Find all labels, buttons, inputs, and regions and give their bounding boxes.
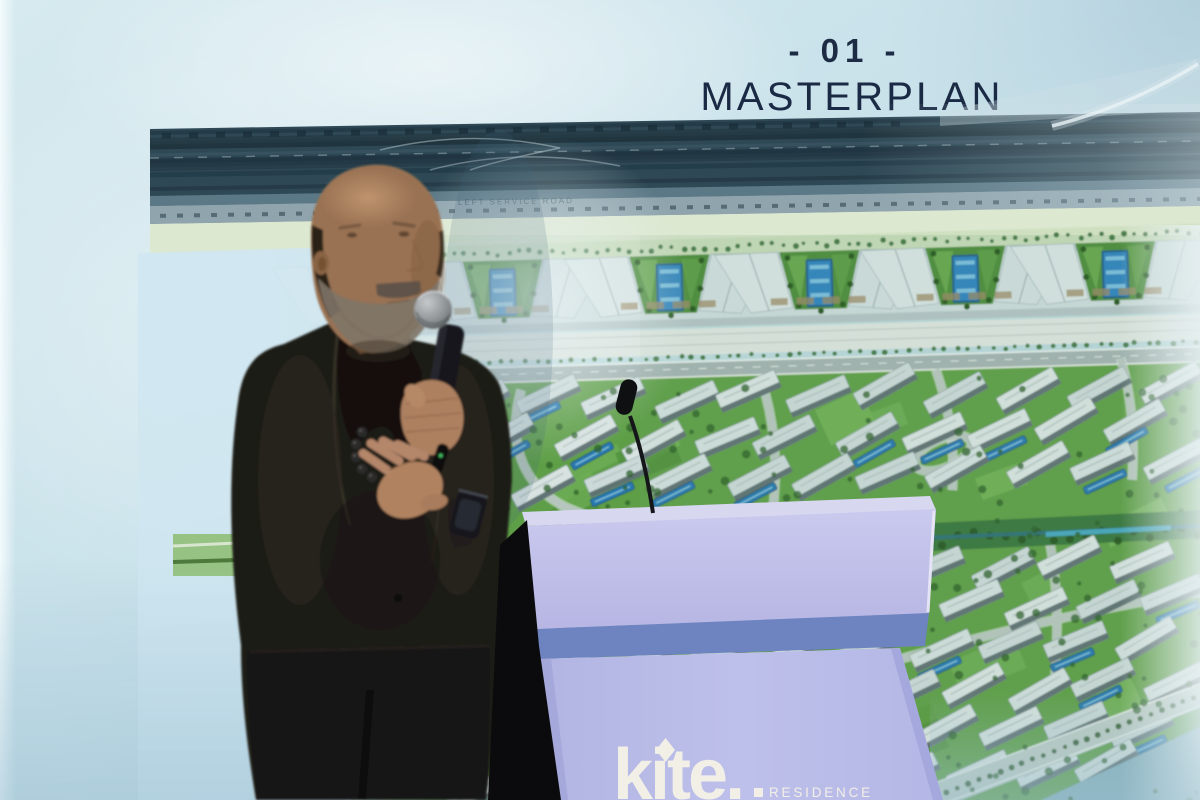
svg-text:RESIDENCE: RESIDENCE <box>769 785 873 800</box>
svg-text:- 01 -: - 01 - <box>788 32 901 69</box>
svg-text:kite.: kite. <box>613 735 742 800</box>
